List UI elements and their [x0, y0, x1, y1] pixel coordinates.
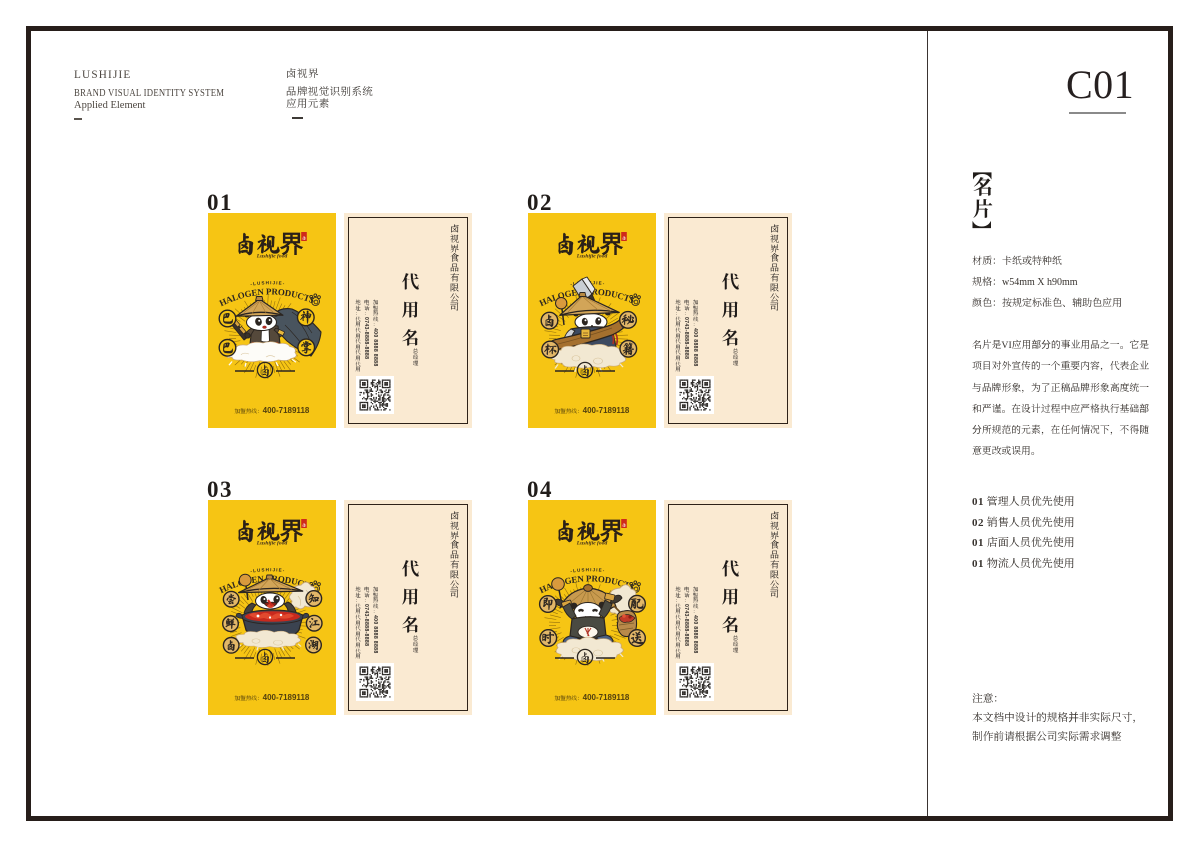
svg-text:卤: 卤	[579, 651, 592, 664]
svg-text:卤视界: 卤视界	[234, 232, 304, 256]
svg-text:杯: 杯	[543, 342, 557, 356]
svg-text:卤: 卤	[302, 523, 307, 528]
svg-text:卤: 卤	[622, 523, 627, 528]
svg-text:卤视界: 卤视界	[554, 232, 624, 256]
svg-text:巴: 巴	[221, 341, 235, 355]
svg-text:秘: 秘	[621, 313, 635, 327]
svg-text:卤: 卤	[259, 651, 272, 664]
svg-text:Lushijie food: Lushijie food	[256, 254, 288, 260]
svg-text:卤: 卤	[302, 236, 307, 241]
svg-text:卤: 卤	[259, 364, 272, 377]
svg-text:尝: 尝	[225, 593, 237, 605]
svg-text:配: 配	[630, 596, 644, 610]
svg-text:掌: 掌	[299, 340, 313, 354]
svg-text:Lushijie food: Lushijie food	[576, 541, 608, 547]
svg-text:巴: 巴	[221, 311, 235, 325]
svg-text:时: 时	[542, 631, 556, 645]
svg-text:湖: 湖	[308, 640, 320, 651]
svg-text:Lushijie food: Lushijie food	[256, 541, 288, 547]
svg-text:加盟热线：400-7189118: 加盟热线：400-7189118	[235, 406, 310, 415]
svg-text:加盟热线：400-7189118: 加盟热线：400-7189118	[555, 406, 630, 415]
svg-text:籍: 籍	[622, 342, 636, 356]
svg-text:加盟热线：400-7189118: 加盟热线：400-7189118	[235, 693, 310, 702]
svg-text:即: 即	[541, 597, 555, 611]
svg-text:知: 知	[308, 594, 320, 605]
svg-text:Lushijie food: Lushijie food	[576, 254, 608, 260]
svg-text:卤: 卤	[543, 313, 557, 327]
svg-text:江: 江	[308, 618, 320, 629]
svg-text:卤视界: 卤视界	[554, 519, 624, 543]
svg-text:卤: 卤	[579, 364, 592, 377]
svg-text:卤视界: 卤视界	[234, 519, 304, 543]
svg-text:卤: 卤	[225, 639, 237, 651]
svg-text:卤: 卤	[622, 236, 627, 241]
svg-text:送: 送	[630, 631, 644, 645]
svg-text:神: 神	[299, 310, 313, 324]
svg-text:加盟热线：400-7189118: 加盟热线：400-7189118	[555, 693, 630, 702]
svg-text:鲜: 鲜	[225, 618, 237, 630]
